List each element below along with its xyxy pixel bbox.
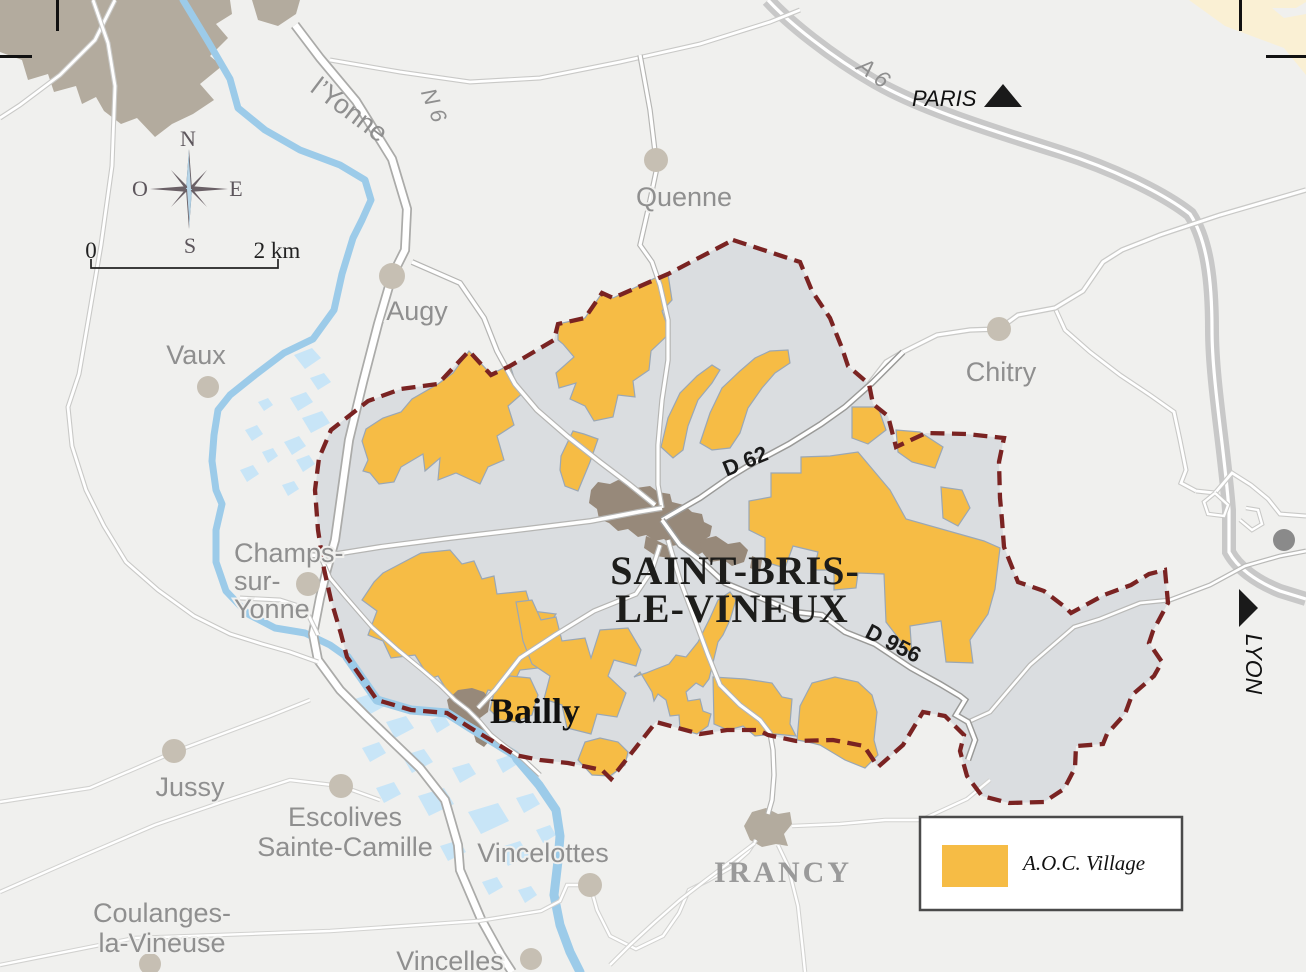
svg-text:PARIS: PARIS	[912, 86, 977, 111]
svg-text:S: S	[184, 233, 196, 258]
svg-text:LYON: LYON	[1241, 634, 1267, 695]
svg-text:IRANCY: IRANCY	[714, 856, 852, 889]
svg-text:Augy: Augy	[386, 296, 448, 326]
svg-text:0: 0	[85, 238, 97, 263]
svg-text:E: E	[229, 176, 242, 201]
svg-text:Sainte-Camille: Sainte-Camille	[257, 832, 433, 862]
svg-text:Vincelles: Vincelles	[396, 946, 504, 972]
svg-text:A.O.C. Village: A.O.C. Village	[1021, 851, 1145, 875]
svg-text:Bailly: Bailly	[490, 691, 580, 731]
svg-text:Escolives: Escolives	[288, 802, 402, 832]
svg-text:O: O	[132, 176, 148, 201]
svg-text:Jussy: Jussy	[155, 772, 225, 802]
svg-text:N: N	[180, 126, 196, 151]
svg-text:la-Vineuse: la-Vineuse	[98, 928, 225, 958]
svg-text:Coulanges-: Coulanges-	[93, 898, 231, 928]
svg-text:Quenne: Quenne	[636, 182, 732, 212]
svg-text:Vaux: Vaux	[166, 340, 226, 370]
svg-text:Yonne: Yonne	[234, 594, 310, 624]
svg-text:LE-VINEUX: LE-VINEUX	[615, 586, 848, 631]
svg-text:Chitry: Chitry	[966, 357, 1037, 387]
svg-text:Vincelottes: Vincelottes	[477, 838, 609, 868]
svg-text:Champs-: Champs-	[234, 538, 344, 568]
svg-text:sur-: sur-	[234, 566, 281, 596]
svg-text:2 km: 2 km	[254, 238, 301, 263]
